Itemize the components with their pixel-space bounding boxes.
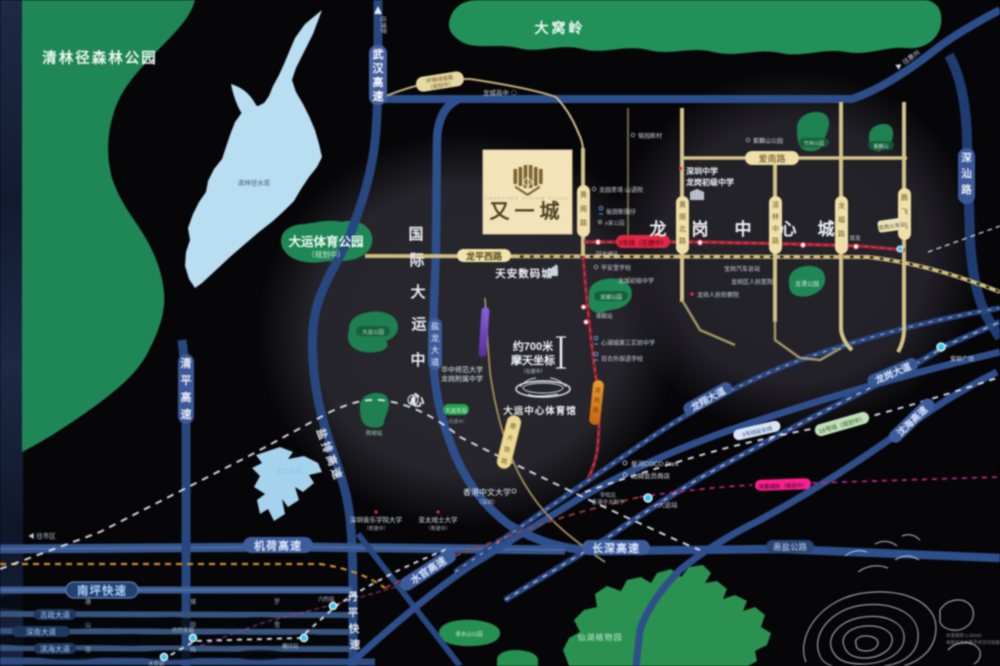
svg-text:速: 速 <box>373 89 384 103</box>
svg-text:中: 中 <box>735 219 752 239</box>
svg-text:往博罗: 往博罗 <box>379 16 387 34</box>
svg-text:山: 山 <box>85 621 91 629</box>
svg-text:龙岗区人民医院: 龙岗区人民医院 <box>731 278 773 286</box>
svg-text:长深高速: 长深高速 <box>592 541 640 555</box>
svg-text:中: 中 <box>410 351 425 369</box>
svg-text:（在建中）: （在建中） <box>520 368 545 375</box>
svg-text:e家公园: e家公园 <box>605 219 625 227</box>
svg-text:回龙埔站: 回龙埔站 <box>596 250 619 258</box>
svg-text:丹: 丹 <box>348 591 359 603</box>
svg-text:路: 路 <box>580 218 587 227</box>
svg-text:大运东站: 大运东站 <box>445 407 468 415</box>
svg-text:深: 深 <box>961 151 972 164</box>
svg-text:宝岗汽车总站: 宝岗汽车总站 <box>724 265 760 273</box>
svg-text:深南大道: 深南大道 <box>26 627 56 637</box>
svg-text:速: 速 <box>350 638 361 651</box>
svg-text:3号线（在建中）: 3号线（在建中） <box>618 238 667 247</box>
svg-text:百合外国语学校: 百合外国语学校 <box>601 355 643 363</box>
svg-text:雪: 雪 <box>274 622 280 629</box>
svg-text:阁: 阁 <box>580 204 587 213</box>
svg-text:龙城公园: 龙城公园 <box>600 293 623 301</box>
svg-text:（筹建中）: （筹建中） <box>363 525 388 532</box>
svg-text:大运中心体育馆: 大运中心体育馆 <box>503 405 577 417</box>
svg-text:心: 心 <box>780 220 797 239</box>
svg-text:梅: 梅 <box>190 646 196 654</box>
svg-text:中: 中 <box>772 224 779 233</box>
svg-text:（规划中）: （规划中） <box>307 249 345 259</box>
svg-text:香港中文大学: 香港中文大学 <box>463 487 511 497</box>
svg-text:仙湖植物园: 仙湖植物园 <box>578 632 623 642</box>
svg-text:龙岗人民检察院: 龙岗人民检察院 <box>697 291 739 299</box>
svg-text:清: 清 <box>772 200 779 209</box>
svg-text:岗: 岗 <box>593 397 600 405</box>
svg-text:平安里学校: 平安里学校 <box>601 264 631 272</box>
svg-text:示意图例 1:25000: 示意图例 1:25000 <box>946 632 982 639</box>
svg-text:机荷高速: 机荷高速 <box>254 539 302 553</box>
svg-text:城: 城 <box>818 220 835 239</box>
svg-text:约700米: 约700米 <box>513 339 554 353</box>
svg-text:腾: 腾 <box>901 193 908 202</box>
svg-text:盐: 盐 <box>431 321 440 331</box>
svg-text:大窝岭: 大窝岭 <box>535 20 586 36</box>
svg-text:又一城: 又一城 <box>490 199 565 223</box>
svg-text:岗: 岗 <box>692 219 709 239</box>
svg-text:求水山公园: 求水山公园 <box>455 630 483 638</box>
svg-text:路: 路 <box>838 229 845 238</box>
svg-text:国: 国 <box>408 226 423 243</box>
svg-text:深圳音乐学院大学: 深圳音乐学院大学 <box>350 515 403 524</box>
svg-text:龙: 龙 <box>838 201 845 210</box>
svg-text:爱联广场: 爱联广场 <box>950 355 974 363</box>
svg-text:高: 高 <box>373 75 384 89</box>
svg-text:（筹建中）: （筹建中） <box>425 525 450 532</box>
svg-text:大: 大 <box>431 345 440 355</box>
svg-text:龙口水库: 龙口水库 <box>276 466 303 475</box>
svg-text:惠盐公路: 惠盐公路 <box>773 542 808 552</box>
svg-text:吉政大道: 吉政大道 <box>40 610 70 620</box>
svg-text:爱南路: 爱南路 <box>758 153 785 164</box>
svg-text:深圳中学: 深圳中学 <box>686 166 718 176</box>
svg-text:摩天坐标: 摩天坐标 <box>511 353 555 367</box>
svg-text:横: 横 <box>190 598 196 606</box>
svg-text:星河COCO Park: 星河COCO Park <box>631 460 679 468</box>
svg-text:紫麟山公园: 紫麟山公园 <box>753 137 783 145</box>
svg-text:道: 道 <box>431 357 440 367</box>
svg-text:路: 路 <box>772 236 779 245</box>
svg-text:快: 快 <box>348 622 360 635</box>
svg-text:荷坳站: 荷坳站 <box>366 429 383 437</box>
svg-text:运: 运 <box>411 316 426 333</box>
svg-text:清: 清 <box>181 356 192 370</box>
svg-text:平: 平 <box>348 607 359 619</box>
svg-text:龙: 龙 <box>431 333 440 343</box>
svg-text:龙园意境·山语院: 龙园意境·山语院 <box>599 186 643 194</box>
svg-text:黄: 黄 <box>580 190 587 199</box>
svg-text:双龙: 双龙 <box>849 234 861 242</box>
svg-text:大运体育公园: 大运体育公园 <box>288 234 363 249</box>
svg-text:龙: 龙 <box>649 219 667 239</box>
svg-text:天安数码城: 天安数码城 <box>495 267 553 280</box>
svg-text:林: 林 <box>772 212 779 221</box>
svg-text:滨海大道: 滨海大道 <box>40 644 70 654</box>
svg-text:福: 福 <box>838 215 845 224</box>
svg-text:平: 平 <box>181 374 192 387</box>
svg-text:南坪快速: 南坪快速 <box>77 584 127 598</box>
svg-text:北: 北 <box>679 225 686 233</box>
svg-text:路: 路 <box>679 236 686 245</box>
svg-text:武: 武 <box>373 47 384 61</box>
svg-text:黄: 黄 <box>679 200 686 209</box>
svg-text:田: 田 <box>190 622 196 629</box>
svg-text:塘: 塘 <box>85 598 91 606</box>
svg-text:香港中大附中: 香港中大附中 <box>591 498 624 506</box>
svg-text:莲: 莲 <box>85 646 91 654</box>
svg-text:愉园新村: 愉园新村 <box>638 132 662 140</box>
svg-text:塘坑站: 塘坑站 <box>282 642 299 650</box>
svg-text:龙平西路: 龙平西路 <box>465 251 503 262</box>
svg-text:阁: 阁 <box>679 212 686 221</box>
svg-text:飞: 飞 <box>901 208 908 216</box>
svg-text:速: 速 <box>181 407 192 421</box>
svg-text:汉: 汉 <box>373 61 385 75</box>
svg-text:龙潭公园: 龙潭公园 <box>795 280 819 288</box>
svg-text:大运公园: 大运公园 <box>362 328 385 336</box>
svg-text:龙城高中 ◇: 龙城高中 ◇ <box>483 88 518 97</box>
svg-text:际: 际 <box>409 252 424 269</box>
svg-text:大: 大 <box>410 283 425 301</box>
svg-text:KANSFORD CITIHM PLAZA: KANSFORD CITIHM PLAZA <box>485 196 570 201</box>
svg-text:汕: 汕 <box>961 167 972 180</box>
svg-text:高: 高 <box>181 390 192 404</box>
svg-text:（在建中）: （在建中） <box>445 418 468 425</box>
svg-text:六约站: 六约站 <box>318 595 335 603</box>
svg-text:心湖城第三实验中学: 心湖城第三实验中学 <box>601 339 655 347</box>
svg-text:学校区: 学校区 <box>600 491 617 499</box>
svg-text:竹林公园: 竹林公园 <box>804 140 824 147</box>
svg-text:亚太戏士大学: 亚太戏士大学 <box>419 515 459 524</box>
svg-text:◀ 往市区: ◀ 往市区 <box>28 531 56 540</box>
svg-text:龙岗初级中学: 龙岗初级中学 <box>685 177 734 187</box>
svg-text:龙岗附属中学: 龙岗附属中学 <box>441 374 483 383</box>
svg-text:大运站: 大运站 <box>658 500 678 509</box>
svg-text:南联站: 南联站 <box>596 312 613 320</box>
svg-text:（深圳）: （深圳） <box>476 498 498 506</box>
svg-text:清林径森林公园: 清林径森林公园 <box>42 49 158 67</box>
svg-text:山姆会员商店: 山姆会员商店 <box>631 471 671 480</box>
svg-text:龙城初级中学: 龙城初级中学 <box>618 277 654 285</box>
svg-text:紫麟山: 紫麟山 <box>873 143 888 150</box>
svg-text:路: 路 <box>961 183 972 196</box>
svg-text:清林径水库: 清林径水库 <box>238 178 271 187</box>
svg-text:坂田新围仔: 坂田新围仔 <box>606 208 636 216</box>
svg-text:华中师范大学: 华中师范大学 <box>441 365 483 374</box>
svg-text:罗: 罗 <box>274 599 280 606</box>
